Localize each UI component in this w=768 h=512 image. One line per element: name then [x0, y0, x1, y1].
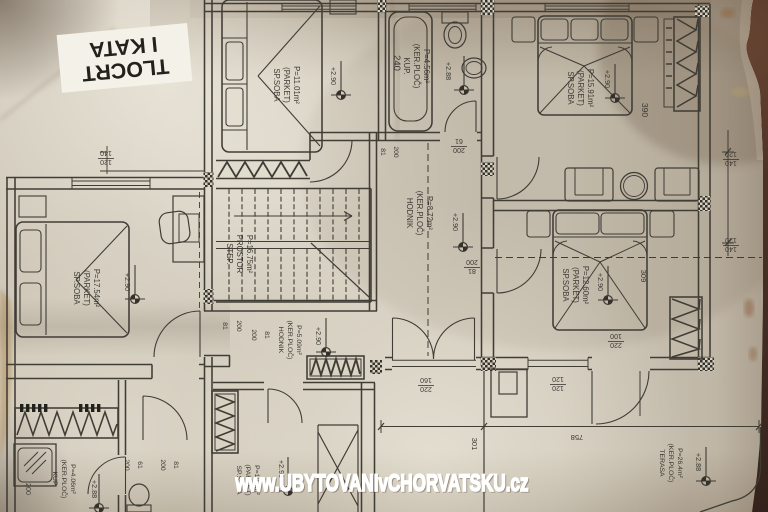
svg-text:81: 81	[221, 322, 228, 330]
svg-text:P=5.09m²: P=5.09m²	[295, 325, 302, 355]
svg-text:200: 200	[392, 146, 399, 158]
svg-text:140: 140	[725, 159, 737, 166]
svg-text:(KER.PLOČ): (KER.PLOČ)	[60, 460, 69, 499]
svg-text:P=17.54m²: P=17.54m²	[92, 269, 101, 308]
svg-text:+2.88: +2.88	[694, 453, 703, 471]
svg-text:(PARKET): (PARKET)	[282, 67, 291, 103]
svg-text:200: 200	[250, 329, 257, 341]
svg-text:(KER.PLOČ): (KER.PLOČ)	[412, 44, 421, 89]
svg-text:P=4.06m²: P=4.06m²	[69, 464, 76, 494]
svg-text:+2.90: +2.90	[329, 67, 338, 85]
svg-text:(KER.PLOČ): (KER.PLOČ)	[667, 444, 676, 483]
svg-text:120: 120	[552, 375, 564, 382]
svg-text:+2.90: +2.90	[451, 213, 460, 231]
svg-text:81: 81	[379, 148, 386, 156]
svg-text:SP.SOBA: SP.SOBA	[72, 271, 81, 305]
svg-text:+2.88: +2.88	[90, 480, 99, 498]
svg-text:220: 220	[420, 385, 432, 392]
svg-text:81: 81	[263, 331, 270, 339]
svg-text:140: 140	[100, 149, 112, 156]
svg-text:301: 301	[470, 438, 479, 451]
svg-text:120: 120	[725, 150, 737, 157]
svg-text:200: 200	[24, 483, 33, 495]
svg-text:120: 120	[552, 384, 564, 391]
svg-text:61: 61	[136, 461, 143, 469]
svg-text:240: 240	[391, 55, 402, 71]
svg-text:SP.SOBA: SP.SOBA	[272, 68, 281, 102]
svg-text:P=8.72m²: P=8.72m²	[425, 196, 434, 230]
svg-text:(KER.PLOČ): (KER.PLOČ)	[286, 321, 295, 360]
svg-text:81: 81	[468, 267, 476, 274]
svg-text:PROSTOR: PROSTOR	[235, 235, 244, 274]
svg-text:120: 120	[100, 158, 112, 165]
svg-text:P=12.60m²: P=12.60m²	[581, 266, 590, 305]
svg-text:758: 758	[571, 433, 584, 442]
svg-text:P=15.91m²: P=15.91m²	[586, 69, 595, 108]
svg-text:www.UBYTOVANIvCHORVATSKU.cz: www.UBYTOVANIvCHORVATSKU.cz	[235, 470, 529, 497]
svg-text:SP.SOBA: SP.SOBA	[561, 268, 570, 302]
svg-text:+2.88: +2.88	[444, 62, 453, 80]
svg-text:220: 220	[610, 341, 622, 348]
svg-text:200: 200	[235, 320, 242, 332]
svg-text:STEP.: STEP.	[225, 243, 234, 265]
svg-text:P=11.01m²: P=11.01m²	[292, 66, 301, 104]
svg-text:(PARKET): (PARKET)	[571, 267, 580, 303]
svg-text:+2.90: +2.90	[603, 70, 612, 88]
svg-text:HODNIK: HODNIK	[405, 198, 414, 229]
svg-text:81: 81	[172, 461, 179, 469]
svg-text:KUP.: KUP.	[51, 472, 58, 487]
svg-text:KUP.: KUP.	[402, 57, 411, 74]
svg-text:HODNIK: HODNIK	[277, 327, 284, 354]
svg-text:61: 61	[455, 137, 463, 144]
svg-text:390: 390	[640, 103, 650, 117]
svg-text:200: 200	[453, 146, 465, 153]
svg-text:P=16.75m²: P=16.75m²	[245, 235, 254, 274]
svg-text:(KER.PLOČ): (KER.PLOČ)	[415, 191, 424, 236]
svg-text:200: 200	[123, 459, 130, 471]
svg-text:+2.90: +2.90	[123, 273, 132, 291]
svg-text:(PARKET): (PARKET)	[82, 270, 91, 306]
svg-text:P=4.56m²: P=4.56m²	[422, 49, 431, 83]
svg-text:+2.90: +2.90	[314, 327, 323, 345]
svg-text:(PARKET): (PARKET)	[576, 70, 585, 106]
svg-text:309: 309	[639, 270, 648, 283]
svg-text:+2.90: +2.90	[596, 273, 605, 291]
svg-text:SP.SOBA: SP.SOBA	[566, 71, 575, 105]
svg-text:P=26.4m²: P=26.4m²	[676, 448, 683, 478]
svg-text:100: 100	[610, 332, 622, 339]
svg-text:200: 200	[159, 459, 166, 471]
svg-text:140: 140	[725, 245, 737, 252]
svg-text:120: 120	[725, 236, 737, 243]
svg-text:200: 200	[466, 258, 478, 265]
svg-text:TERASA: TERASA	[658, 449, 665, 477]
svg-text:160: 160	[420, 376, 432, 383]
